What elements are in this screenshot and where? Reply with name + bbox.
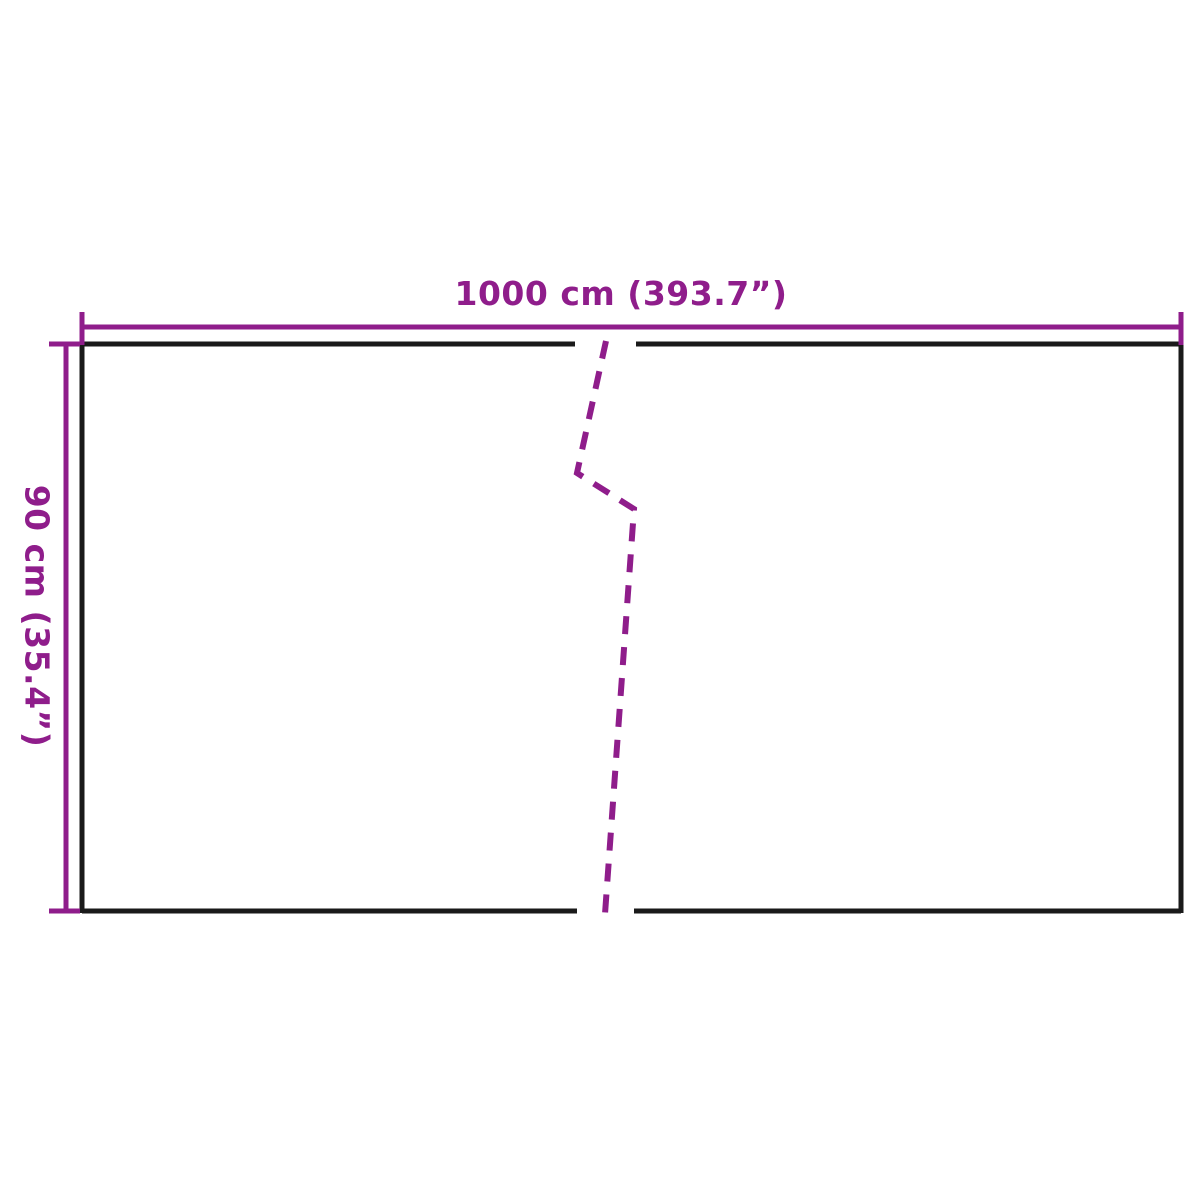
product-dimension-diagram: 1000 cm (393.7”) 90 cm (35.4”): [0, 0, 1200, 1200]
break-line: [577, 341, 634, 914]
diagram-canvas: [0, 0, 1200, 1200]
panel-outline: [82, 342, 1181, 913]
width-dimension-label: 1000 cm (393.7”): [454, 274, 787, 313]
height-dimension-label: 90 cm (35.4”): [18, 485, 57, 748]
width-dimension: [82, 312, 1181, 345]
